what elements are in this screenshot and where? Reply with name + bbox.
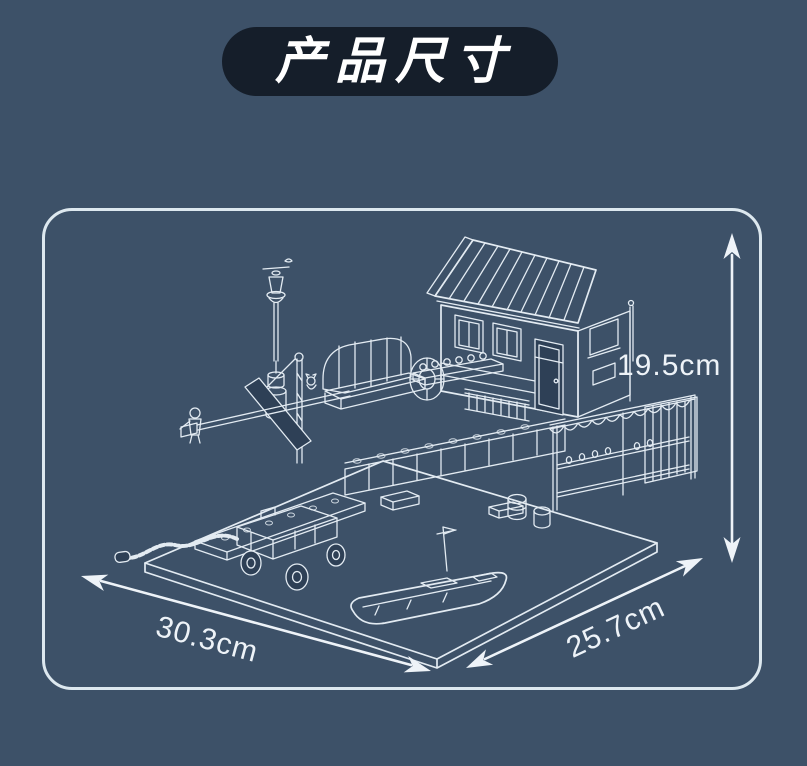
product-dimensions-infographic: { "header": { "title": "产品尺寸" }, "diagra… [0,0,807,766]
page-title: 产品尺寸 [265,36,515,86]
cart [237,506,345,590]
arched-awning-cabin [306,337,425,409]
crane [180,353,444,463]
market-stall [550,395,697,511]
height-dimension-arrow [724,233,741,563]
balcony-railing [465,389,529,421]
boat [351,527,506,624]
dimension-diagram-panel: 19.5cm 30.3cm 25.7cm [42,208,762,690]
title-badge: 产品尺寸 [222,27,558,96]
main-building [427,237,634,417]
mid-wall [345,419,565,495]
height-dimension-label: 19.5cm [617,349,747,383]
barrels-crates [381,491,550,528]
